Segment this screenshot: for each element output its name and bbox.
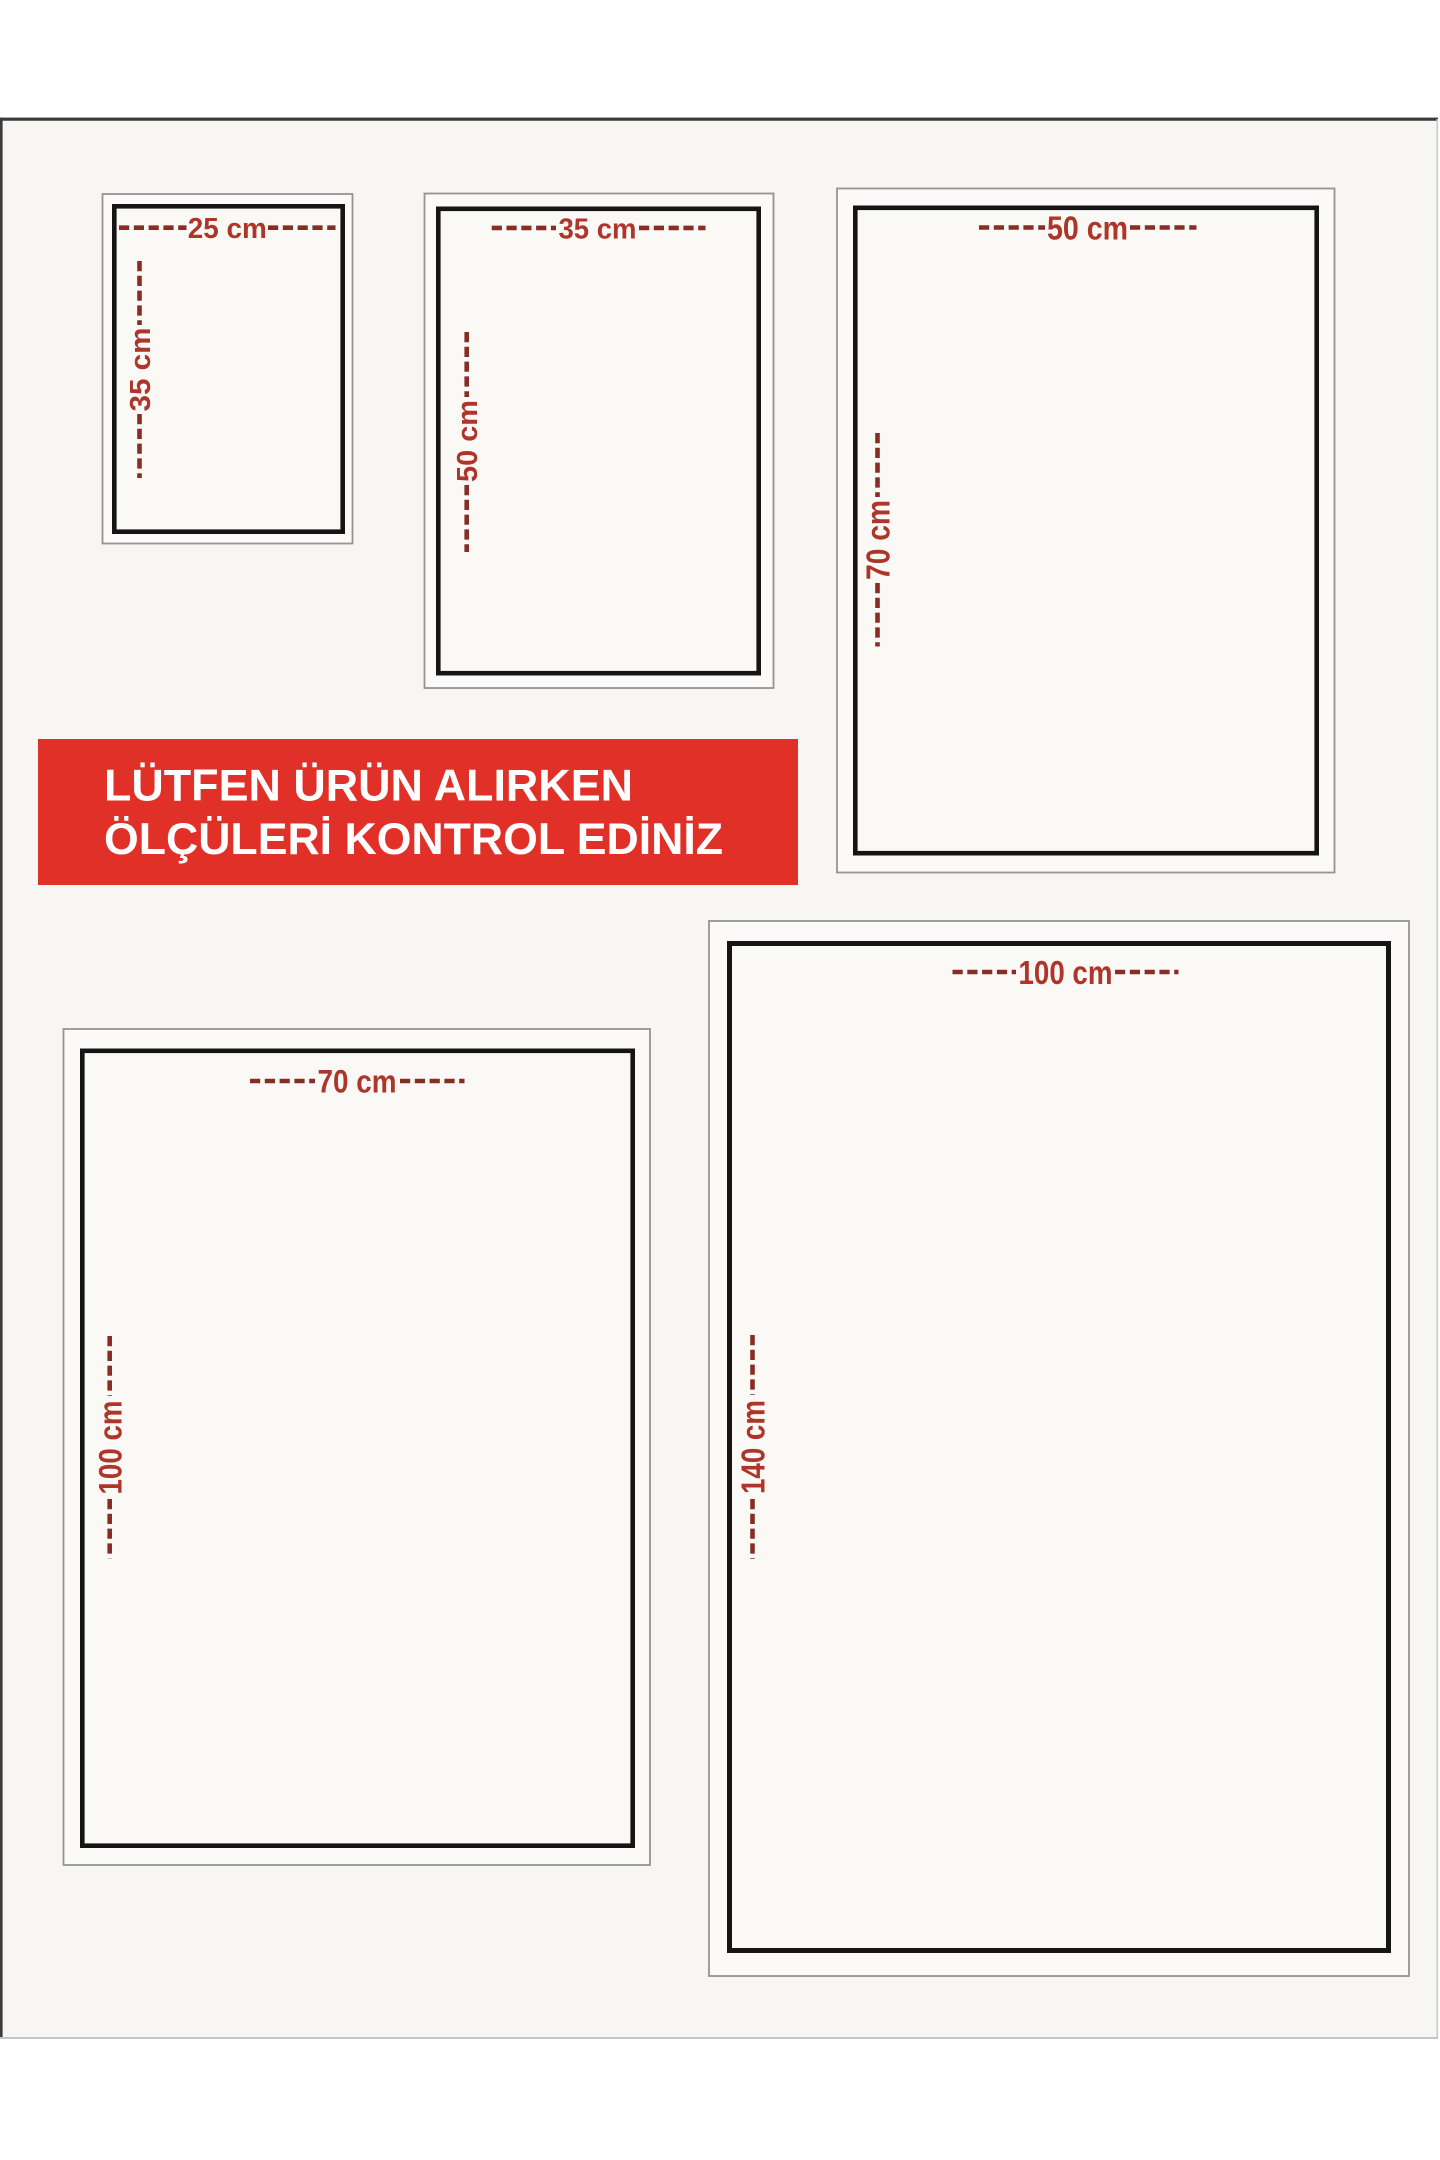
svg-text:70 cm: 70 cm: [318, 1064, 397, 1100]
svg-text:35 cm: 35 cm: [559, 213, 637, 245]
svg-text:70 cm: 70 cm: [859, 500, 896, 580]
svg-text:LÜTFEN ÜRÜN ALIRKEN: LÜTFEN ÜRÜN ALIRKEN: [104, 762, 633, 811]
svg-text:35 cm: 35 cm: [125, 328, 157, 412]
svg-text:140 cm: 140 cm: [734, 1400, 771, 1494]
svg-text:100 cm: 100 cm: [1019, 954, 1113, 991]
svg-text:100 cm: 100 cm: [92, 1401, 128, 1495]
svg-text:25 cm: 25 cm: [188, 213, 267, 245]
svg-text:ÖLÇÜLERİ KONTROL EDİNİZ: ÖLÇÜLERİ KONTROL EDİNİZ: [104, 815, 723, 864]
svg-text:50 cm: 50 cm: [452, 400, 484, 482]
svg-text:50 cm: 50 cm: [1047, 209, 1128, 246]
